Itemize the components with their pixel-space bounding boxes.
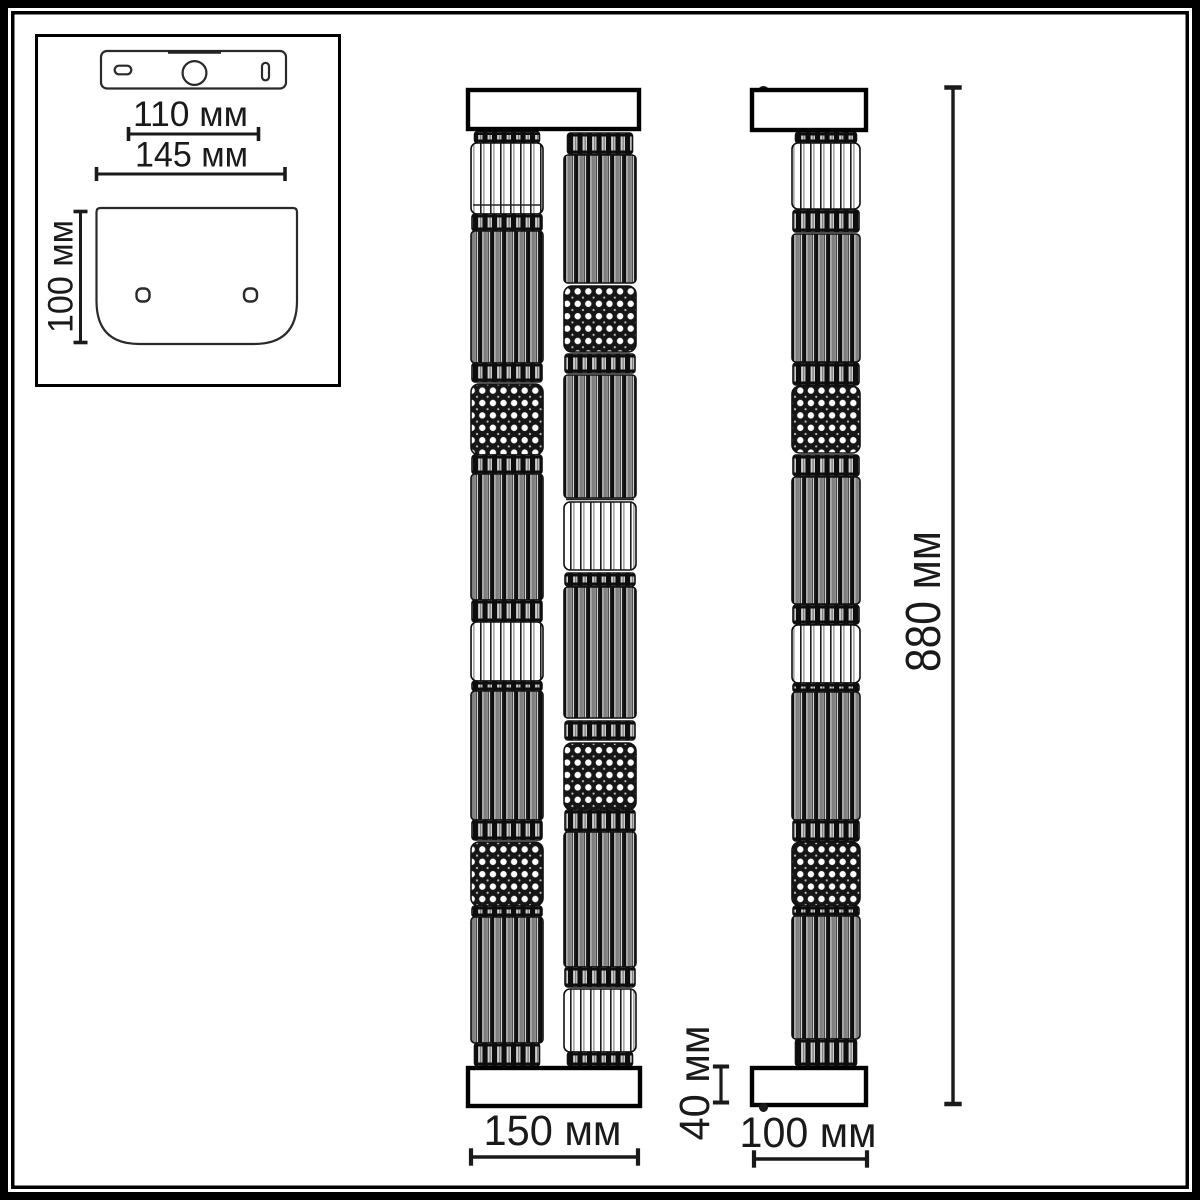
svg-text:150 мм: 150 мм <box>484 1107 622 1155</box>
svg-text:40 мм: 40 мм <box>671 1026 719 1141</box>
svg-text:110 мм: 110 мм <box>133 95 248 134</box>
svg-text:145 мм: 145 мм <box>135 136 248 175</box>
svg-text:100 мм: 100 мм <box>42 220 81 333</box>
svg-text:880 мм: 880 мм <box>897 531 951 672</box>
svg-text:100 мм: 100 мм <box>740 1109 877 1157</box>
